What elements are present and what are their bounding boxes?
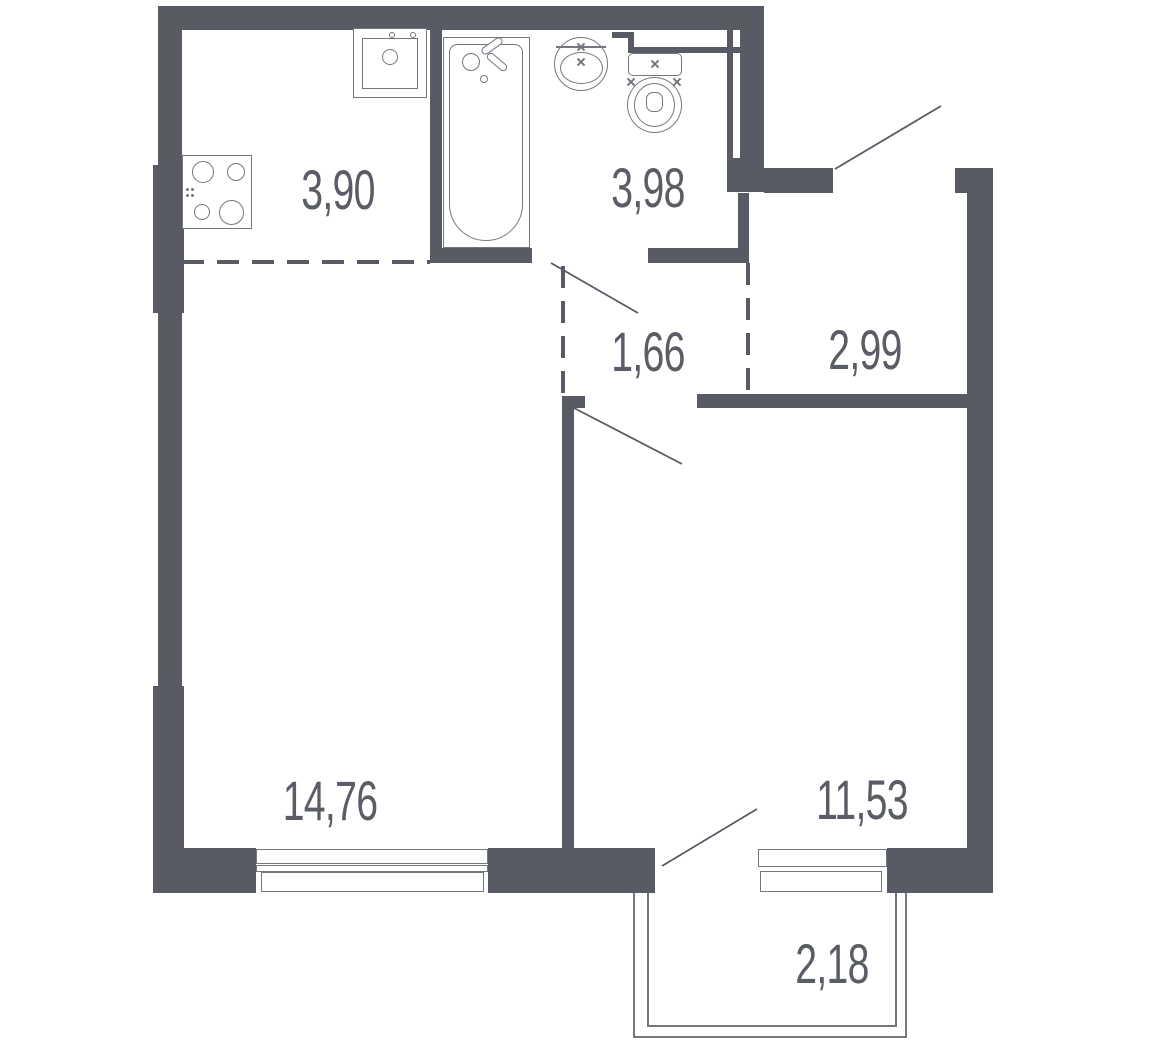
- kitchen-sink-drain: [382, 49, 398, 65]
- door-swing-bedroom: [574, 408, 682, 464]
- bathtub-basin: [449, 44, 523, 241]
- stove-knob-dot: [191, 188, 194, 191]
- stove-burner-2: [227, 163, 245, 181]
- bathtub-faucet: [462, 53, 480, 71]
- room-label-kitchen: 3,90: [301, 162, 375, 218]
- room-label-living-room: 14,76: [283, 773, 378, 829]
- room-label-corridor: 1,66: [611, 324, 685, 380]
- stove-burner-1: [192, 161, 214, 183]
- room-label-hallway: 2,99: [828, 322, 902, 378]
- bathtub-drain: [480, 75, 488, 83]
- kitchen-sink-tap-right: [410, 32, 416, 38]
- kitchen-sink-tap-left: [389, 32, 395, 38]
- floor-plan: 3,90 3,98 1,66 2,99 14,76 11,53 2,18: [0, 0, 1150, 1040]
- stove-knob-dot: [186, 194, 189, 197]
- door-swing-bathroom: [551, 263, 638, 313]
- door-swing-overlay: [0, 0, 1150, 1040]
- door-swing-entrance: [835, 106, 941, 169]
- door-swing-balcony: [662, 809, 757, 866]
- stove-burner-4: [219, 200, 244, 225]
- stove-burner-3: [194, 204, 210, 220]
- stove-knob-dot: [186, 188, 189, 191]
- room-label-balcony: 2,18: [795, 936, 869, 992]
- room-label-bedroom: 11,53: [816, 772, 908, 828]
- stove-knob-dot: [191, 194, 194, 197]
- room-label-bathroom: 3,98: [611, 160, 685, 216]
- toilet-flush: [646, 92, 663, 112]
